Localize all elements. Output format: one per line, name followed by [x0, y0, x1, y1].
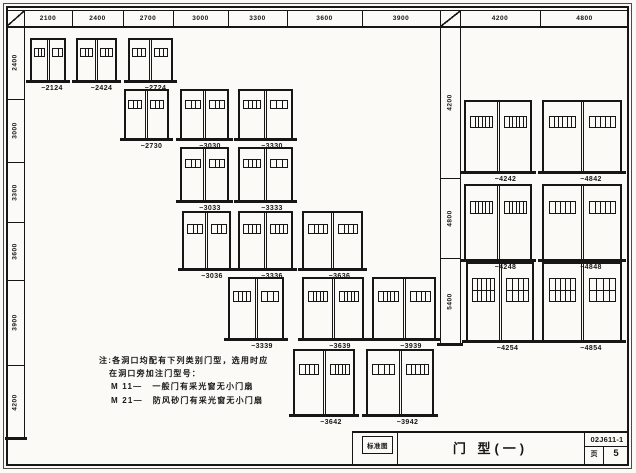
window-pane	[195, 160, 200, 167]
door-label: −3942	[377, 419, 438, 426]
door-right-jamb	[532, 262, 534, 342]
door-center-stile	[581, 264, 584, 340]
window-pane	[219, 160, 224, 167]
window-pane	[256, 225, 260, 233]
door-threshold	[289, 414, 359, 417]
door-center-stile	[95, 40, 98, 80]
door-left-jamb	[372, 277, 374, 340]
window-pane	[141, 49, 145, 56]
door-right-jamb	[291, 89, 293, 140]
window-pane	[609, 279, 615, 290]
door-figure-2124: −2124	[30, 38, 66, 95]
door-window-right	[589, 278, 616, 302]
door-center-stile	[203, 149, 206, 200]
door-center-stile	[264, 91, 267, 138]
door-window-left	[185, 159, 201, 168]
window-pane	[523, 202, 527, 213]
window-pane	[570, 290, 575, 301]
door-figure-3033: −3033	[180, 147, 229, 215]
notes-block: 注:各洞口均配有下列类别门型，选用时应 在洞口旁加注门型号： M 11—一般门有…	[99, 354, 339, 408]
door-window-left	[470, 201, 493, 214]
door-right-jamb	[227, 89, 229, 140]
door-threshold	[234, 268, 297, 271]
height-header-right-4800-text: 4800	[447, 210, 454, 226]
door-label: −4254	[477, 345, 538, 352]
window-pane	[523, 117, 527, 127]
door-label: −3642	[303, 419, 359, 426]
document-number: 02J611-1	[585, 432, 629, 446]
door-center-stile	[331, 213, 334, 268]
door-threshold	[538, 171, 626, 174]
sheet-title: 门 型(一)	[398, 433, 583, 461]
window-pane	[489, 202, 493, 213]
door-center-stile	[205, 213, 208, 268]
window-pane	[345, 365, 349, 374]
door-window-left	[308, 291, 328, 302]
door-center-stile	[145, 91, 148, 138]
door-window-right	[261, 291, 279, 302]
window-pane	[323, 225, 328, 233]
door-left-jamb	[542, 262, 544, 342]
door-window-right	[589, 116, 616, 128]
door-threshold	[72, 80, 121, 83]
door-window-left	[80, 48, 93, 57]
door-figure-3942: −3942	[366, 349, 434, 429]
door-threshold	[176, 138, 233, 141]
window-pane	[137, 101, 141, 108]
door-figure-3333: −3333	[238, 147, 293, 215]
left-table-corner-diagonal	[7, 11, 24, 26]
height-header-left-3900-text: 3900	[12, 314, 19, 330]
door-left-jamb	[180, 89, 182, 140]
door-right-jamb	[64, 38, 66, 82]
height-header-left-2400: 2400	[6, 26, 24, 99]
door-left-jamb	[466, 262, 468, 342]
door-window-left	[128, 100, 142, 109]
header-bottom-line	[7, 26, 629, 28]
window-pane	[424, 365, 428, 374]
width-header-3900: 3900	[362, 10, 440, 26]
door-window-right	[338, 224, 358, 234]
note-item-1: M 11—一般门有采光窗无小门扇	[99, 380, 339, 394]
window-pane	[425, 292, 430, 301]
door-window-right	[209, 159, 225, 168]
door-center-stile	[403, 279, 406, 338]
door-center-stile	[47, 40, 50, 80]
door-left-jamb	[302, 211, 304, 270]
door-left-jamb	[464, 184, 466, 261]
door-left-jamb	[124, 89, 126, 140]
door-center-stile	[581, 102, 584, 171]
window-pane	[221, 225, 226, 233]
door-label: −4842	[555, 176, 627, 183]
height-header-right-4200-text: 4200	[447, 94, 454, 110]
window-pane	[610, 202, 615, 213]
door-threshold	[178, 268, 235, 271]
width-header-2100: 2100	[24, 10, 72, 26]
door-right-jamb	[167, 89, 169, 140]
height-header-left-3300: 3300	[6, 162, 24, 222]
door-left-jamb	[464, 100, 466, 173]
door-type-description: 一般门有采光窗无小门扇	[152, 380, 253, 394]
door-window-right	[504, 201, 527, 214]
door-window-right	[100, 48, 113, 57]
width-header-2400: 2400	[72, 10, 123, 26]
door-threshold	[362, 414, 438, 417]
window-pane	[283, 225, 287, 233]
door-window-right	[154, 48, 168, 57]
window-pane	[195, 101, 200, 108]
door-window-left	[243, 159, 261, 168]
door-figure-3339: −3339	[228, 277, 284, 353]
door-window-left	[243, 224, 261, 234]
window-pane	[256, 101, 260, 108]
door-figure-2724: −2724	[128, 38, 173, 95]
door-right-jamb	[530, 184, 532, 261]
drawing-sheet: 210024002700300033003600390042004800 240…	[0, 0, 636, 473]
door-figure-4248: −4248	[464, 184, 532, 274]
door-center-stile	[499, 264, 502, 340]
door-window-right	[270, 100, 288, 109]
window-pane	[489, 117, 493, 127]
door-window-left	[472, 278, 495, 302]
door-right-jamb	[620, 262, 622, 342]
window-pane	[282, 160, 287, 167]
door-left-jamb	[238, 147, 240, 202]
window-pane	[282, 101, 287, 108]
door-window-right	[589, 201, 616, 214]
door-left-jamb	[238, 211, 240, 270]
door-figure-2730: −2730	[124, 89, 169, 153]
door-figure-4254: −4254	[466, 262, 534, 355]
door-window-right	[52, 48, 63, 57]
window-pane	[41, 49, 44, 56]
window-pane	[610, 117, 615, 127]
door-figure-3030: −3030	[180, 89, 229, 153]
door-window-left	[378, 291, 399, 302]
window-pane	[570, 279, 575, 290]
door-right-jamb	[362, 277, 364, 340]
window-pane	[256, 160, 260, 167]
door-window-left	[308, 224, 328, 234]
door-window-right	[150, 100, 164, 109]
height-header-left-4200: 4200	[6, 365, 24, 439]
door-window-right	[270, 224, 288, 234]
window-pane	[490, 279, 494, 290]
height-header-left-2400-text: 2400	[12, 54, 19, 70]
window-pane	[246, 292, 250, 301]
door-threshold	[460, 171, 536, 174]
door-window-left	[243, 100, 261, 109]
page-number: 5	[603, 445, 629, 462]
door-label: −2424	[83, 85, 120, 92]
door-right-jamb	[171, 38, 173, 82]
door-right-jamb	[229, 211, 231, 270]
window-pane	[389, 365, 394, 374]
door-center-stile	[497, 102, 500, 171]
door-type-description: 防风砂门有采光窗无小门扇	[153, 394, 263, 408]
width-header-3300: 3300	[228, 10, 287, 26]
door-figure-3639: −3639	[302, 277, 364, 353]
door-label: −2124	[36, 85, 68, 92]
height-header-left-3000: 3000	[6, 99, 24, 162]
door-threshold	[176, 200, 233, 203]
height-header-left-4200-text: 4200	[12, 394, 19, 410]
door-right-jamb	[620, 184, 622, 261]
door-left-jamb	[30, 38, 32, 82]
door-left-jamb	[128, 38, 130, 82]
door-threshold	[234, 200, 297, 203]
door-left-jamb	[302, 277, 304, 340]
window-pane	[353, 225, 358, 233]
window-pane	[523, 290, 528, 301]
door-threshold	[120, 138, 173, 141]
door-label: −2730	[131, 143, 172, 150]
door-figure-4842: −4842	[542, 100, 622, 186]
door-type-code: M 11—	[111, 380, 142, 394]
window-pane	[394, 292, 398, 301]
door-type-code: M 21—	[111, 394, 143, 408]
door-left-jamb	[76, 38, 78, 82]
door-figure-2424: −2424	[76, 38, 117, 95]
door-right-jamb	[432, 349, 434, 416]
door-left-jamb	[542, 184, 544, 261]
height-header-right-4200: 4200	[441, 26, 460, 178]
door-right-jamb	[434, 277, 436, 340]
height-header-right-4800: 4800	[441, 178, 460, 258]
door-window-left	[372, 364, 395, 375]
height-header-right-5400: 5400	[441, 258, 460, 345]
window-pane	[219, 101, 224, 108]
height-header-left-3300-text: 3300	[12, 184, 19, 200]
door-window-left	[233, 291, 251, 302]
door-figure-3636: −3636	[302, 211, 363, 283]
door-left-jamb	[366, 349, 368, 416]
door-window-right	[410, 291, 431, 302]
door-center-stile	[399, 351, 402, 414]
door-left-jamb	[238, 89, 240, 140]
window-pane	[571, 117, 575, 127]
door-window-right	[339, 291, 359, 302]
door-window-right	[504, 116, 527, 128]
door-threshold	[462, 340, 538, 343]
door-label: −4242	[475, 176, 536, 183]
window-pane	[570, 202, 575, 213]
door-right-jamb	[620, 100, 622, 173]
height-header-left-3600-text: 3600	[12, 243, 19, 259]
title-block-left-line	[352, 431, 353, 464]
door-figure-4854: −4854	[542, 262, 622, 355]
door-left-jamb	[182, 211, 184, 270]
stamp-box: 标准图	[362, 436, 393, 454]
door-left-jamb	[180, 147, 182, 202]
window-pane	[88, 49, 92, 56]
height-header-left-3600: 3600	[6, 222, 24, 280]
mid-rowcol-right-line	[460, 10, 461, 345]
height-header-right-5400-text: 5400	[447, 293, 454, 309]
note-line-2: 在洞口旁加注门型号：	[99, 367, 339, 380]
door-center-stile	[332, 279, 335, 338]
door-window-left	[185, 100, 201, 109]
door-figure-4848: −4848	[542, 184, 622, 274]
door-figure-3330: −3330	[238, 89, 293, 153]
door-threshold	[298, 268, 367, 271]
note-line-1: 注:各洞口均配有下列类别门型，选用时应	[99, 354, 339, 367]
window-pane	[490, 290, 494, 301]
door-threshold	[298, 338, 368, 341]
window-pane	[354, 292, 358, 301]
door-window-left	[34, 48, 45, 57]
door-window-left	[132, 48, 146, 57]
door-center-stile	[264, 149, 267, 200]
door-center-stile	[203, 91, 206, 138]
door-window-right	[211, 224, 227, 234]
window-pane	[523, 279, 528, 290]
door-threshold	[124, 80, 177, 83]
door-right-jamb	[361, 211, 363, 270]
door-window-right	[270, 159, 288, 168]
window-pane	[609, 290, 615, 301]
width-header-2700: 2700	[123, 10, 173, 26]
door-window-left	[549, 116, 576, 128]
window-pane	[58, 49, 63, 56]
door-label: −4854	[555, 345, 627, 352]
window-pane	[159, 101, 163, 108]
door-window-left	[187, 224, 203, 234]
door-figure-4242: −4242	[464, 100, 532, 186]
door-window-right	[406, 364, 429, 375]
door-threshold	[368, 338, 440, 341]
width-header-3000: 3000	[173, 10, 228, 26]
page-label: 页	[585, 446, 603, 462]
note-item-2: M 21—防风砂门有采光窗无小门扇	[99, 394, 339, 408]
window-pane	[163, 49, 167, 56]
width-header-4200: 4200	[460, 10, 540, 26]
door-window-right	[506, 278, 529, 302]
door-right-jamb	[227, 147, 229, 202]
door-figure-3036: −3036	[182, 211, 231, 283]
height-header-left-3000-text: 3000	[12, 122, 19, 138]
door-right-jamb	[291, 147, 293, 202]
door-window-left	[549, 201, 576, 214]
door-threshold	[224, 338, 288, 341]
width-header-3600: 3600	[287, 10, 362, 26]
door-right-jamb	[530, 100, 532, 173]
door-left-jamb	[542, 100, 544, 173]
window-pane	[197, 225, 202, 233]
door-center-stile	[264, 213, 267, 268]
door-left-jamb	[228, 277, 230, 340]
door-center-stile	[497, 186, 500, 259]
door-figure-3336: −3336	[238, 211, 293, 283]
door-window-right	[209, 100, 225, 109]
right-table-corner-diagonal	[441, 11, 460, 26]
door-threshold	[234, 138, 297, 141]
door-window-left	[549, 278, 576, 302]
door-right-jamb	[282, 277, 284, 340]
window-pane	[323, 292, 327, 301]
door-right-jamb	[353, 349, 355, 416]
left-rowcol-right-line	[24, 10, 25, 440]
window-pane	[273, 292, 278, 301]
door-right-jamb	[115, 38, 117, 82]
door-window-left	[470, 116, 493, 128]
width-header-4800: 4800	[540, 10, 629, 26]
door-center-stile	[149, 40, 152, 80]
door-right-jamb	[291, 211, 293, 270]
window-pane	[108, 49, 112, 56]
door-label: −3339	[237, 343, 287, 350]
door-center-stile	[581, 186, 584, 259]
height-header-left-3900: 3900	[6, 280, 24, 365]
door-figure-3939: −3939	[372, 277, 436, 353]
note-type-list: M 11—一般门有采光窗无小门扇M 21—防风砂门有采光窗无小门扇	[99, 380, 339, 408]
door-threshold	[538, 340, 626, 343]
door-threshold	[26, 80, 70, 83]
door-center-stile	[255, 279, 258, 338]
